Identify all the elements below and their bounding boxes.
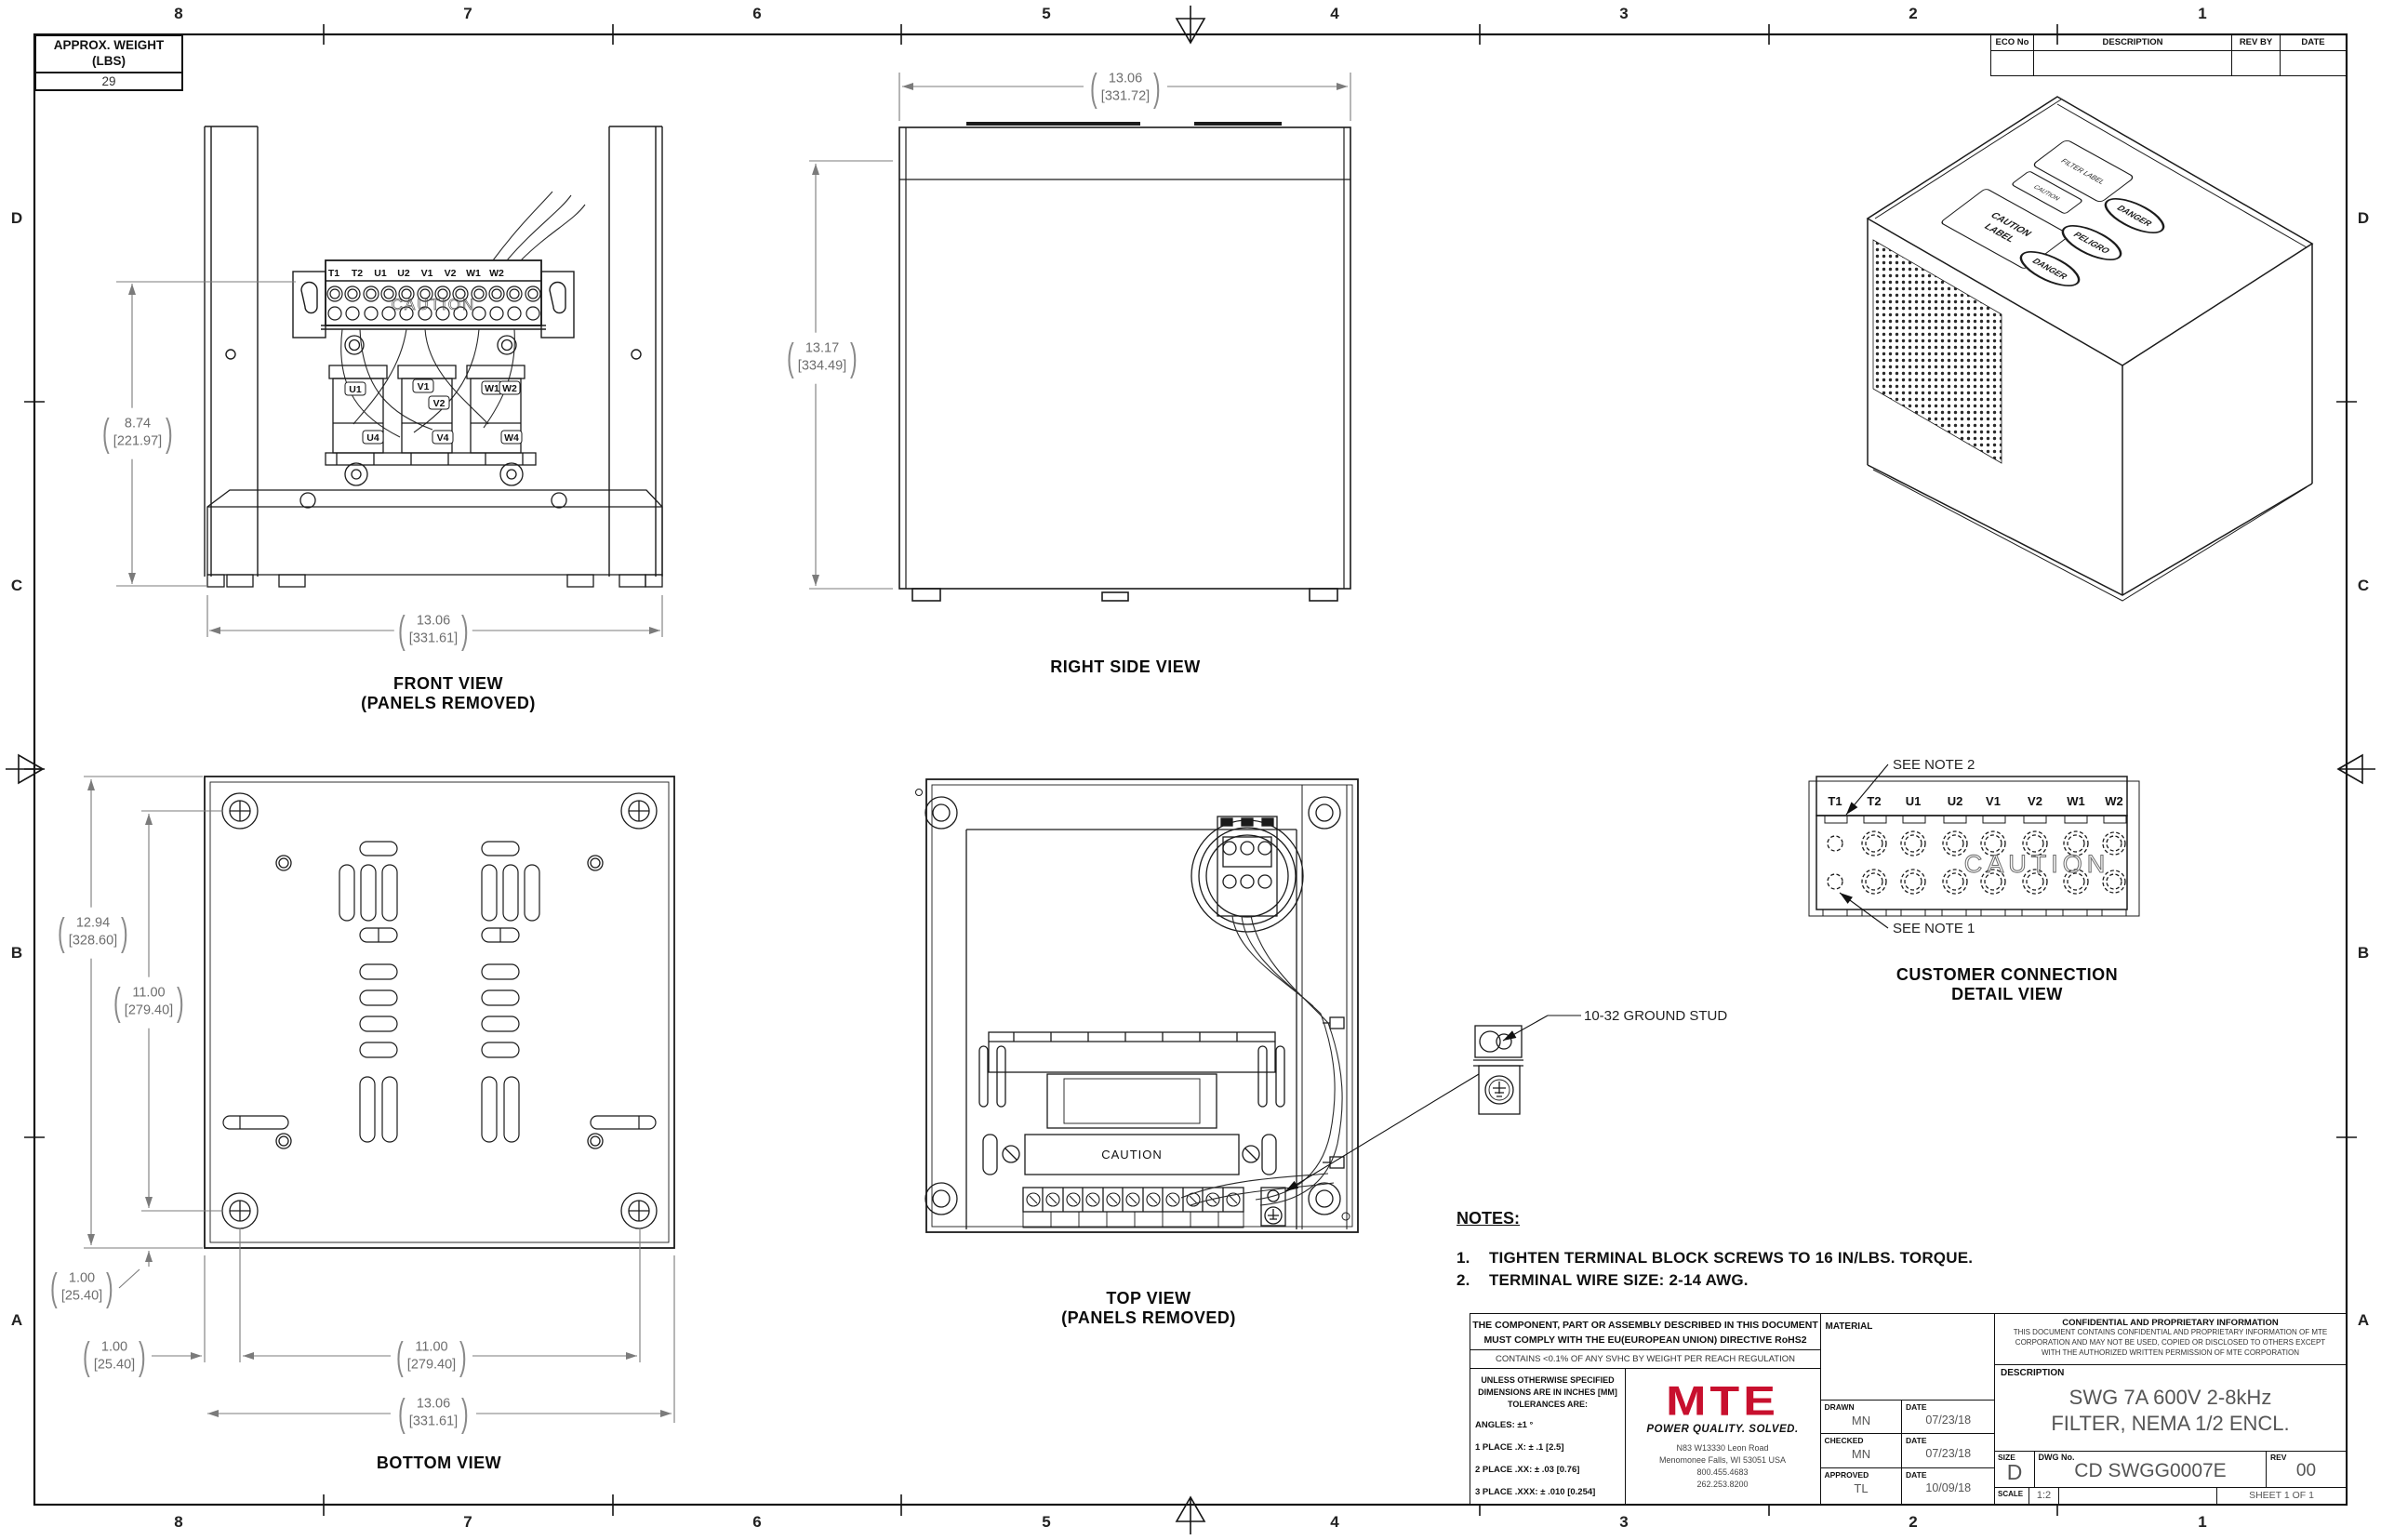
detail-terminal-u1: U1 <box>1906 794 1922 808</box>
drawn-date-label: DATE <box>1902 1401 1995 1414</box>
sheet-value: SHEET 1 OF 1 <box>2217 1488 2346 1504</box>
front-view-title-text: FRONT VIEW <box>393 674 503 693</box>
front-terminal-t1: T1 <box>328 268 339 279</box>
dwg-no-value: CD SWGG0007E <box>2035 1460 2267 1482</box>
confidential-title: CONFIDENTIAL AND PROPRIETARY INFORMATION <box>1995 1318 2346 1328</box>
zone-col-1-bottom: 1 <box>2198 1513 2206 1532</box>
drawing-sheet: FILTER LABEL CAUTION CAUTION LABEL DANGE… <box>0 0 2381 1540</box>
checked-name: MN <box>1821 1447 1902 1461</box>
material-cell: MATERIAL <box>1820 1313 1996 1401</box>
confidential-cell: CONFIDENTIAL AND PROPRIETARY INFORMATION… <box>1994 1313 2347 1365</box>
zone-row-c-left: C <box>11 577 22 595</box>
zone-row-c-right: C <box>2358 577 2369 595</box>
size-value: D <box>1995 1460 2034 1485</box>
note-1-number: 1. <box>1457 1249 1484 1268</box>
dim-side-height: (13.17[334.49]) <box>783 333 861 384</box>
zone-row-d-left: D <box>11 209 22 228</box>
bottom-view-drawing <box>84 777 674 1423</box>
ground-stud-detail <box>1473 1026 1523 1114</box>
front-view-drawing <box>116 126 662 637</box>
tol-angles: ANGLES: ±1 ° <box>1475 1420 1620 1430</box>
scale-label: SCALE <box>1995 1488 2029 1500</box>
detail-caution-watermark: CAUTION <box>1964 850 2110 878</box>
weight-table-header: APPROX. WEIGHT (LBS) <box>36 36 181 73</box>
dim-bottom-hole-v: (11.00[279.40]) <box>110 977 188 1029</box>
note-item-1: 1. TIGHTEN TERMINAL BLOCK SCREWS TO 16 I… <box>1457 1249 2163 1268</box>
eco-col-revby: REV BY <box>2232 35 2281 50</box>
dim-side-width: (13.06[331.72]) <box>1086 63 1164 114</box>
eco-col-description: DESCRIPTION <box>2034 35 2232 50</box>
scale-value: 1:2 <box>2029 1488 2059 1504</box>
weight-header-line2: (LBS) <box>92 54 126 68</box>
zone-col-7-top: 7 <box>463 5 472 23</box>
front-caution-text: CAUTION <box>392 296 476 313</box>
cap-label-u1: U1 <box>349 384 362 395</box>
zone-row-b-right: B <box>2358 944 2369 962</box>
zone-col-7-bottom: 7 <box>463 1513 472 1532</box>
isometric-view-drawing: FILTER LABEL CAUTION CAUTION LABEL DANGE… <box>1868 97 2312 601</box>
approved-cell: APPROVED TL <box>1820 1467 1903 1506</box>
right-side-dims <box>809 73 1350 589</box>
zone-col-2-bottom: 2 <box>1909 1513 1917 1532</box>
detail-terminal-w1: W1 <box>2067 794 2085 808</box>
bottom-view-title: BOTTOM VIEW <box>377 1454 501 1473</box>
front-dims <box>116 282 662 637</box>
zone-col-8-bottom: 8 <box>174 1513 182 1532</box>
detail-view-title: CUSTOMER CONNECTION DETAIL VIEW <box>1896 965 2118 1004</box>
front-terminal-v1: V1 <box>421 268 433 279</box>
title-block: THE COMPONENT, PART OR ASSEMBLY DESCRIBE… <box>1470 1313 2347 1505</box>
top-strip-screws <box>1027 1193 1240 1206</box>
zone-col-4-top: 4 <box>1330 5 1338 23</box>
cap-label-v1: V1 <box>418 381 430 392</box>
front-terminal-v2: V2 <box>445 268 457 279</box>
cap-label-w2: W2 <box>502 383 517 394</box>
material-label: MATERIAL <box>1826 1321 1873 1332</box>
note-2-number: 2. <box>1457 1271 1484 1290</box>
checked-cell: CHECKED MN <box>1820 1433 1903 1468</box>
leaders <box>1285 1016 1581 1191</box>
bottom-view-title-text: BOTTOM VIEW <box>377 1454 501 1472</box>
tol-place3: 3 PLACE .XXX: ± .010 [0.254] <box>1475 1487 1620 1497</box>
tol-place1: 1 PLACE .X: ± .1 [2.5] <box>1475 1442 1620 1453</box>
eco-revision-table: ECO No DESCRIPTION REV BY DATE <box>1990 34 2347 76</box>
top-caution-text: CAUTION <box>1101 1148 1163 1162</box>
scale-empty-cell <box>2058 1487 2218 1506</box>
approved-date-cell: DATE 10/09/18 <box>1901 1467 1996 1506</box>
zone-row-b-left: B <box>11 944 22 962</box>
approved-label: APPROVED <box>1821 1468 1902 1481</box>
front-view-subtitle: (PANELS REMOVED) <box>361 694 536 713</box>
zone-col-6-bottom: 6 <box>752 1513 761 1532</box>
top-view-subtitle: (PANELS REMOVED) <box>1061 1308 1236 1328</box>
cap-label-w4: W4 <box>504 432 519 444</box>
right-side-view-title-text: RIGHT SIDE VIEW <box>1050 657 1201 676</box>
reach-cell: CONTAINS <0.1% OF ANY SVHC BY WEIGHT PER… <box>1470 1349 1821 1370</box>
description-line2: FILTER, NEMA 1/2 ENCL. <box>2051 1412 2289 1435</box>
eco-empty-row <box>1991 51 2346 76</box>
zone-col-5-top: 5 <box>1042 5 1050 23</box>
detail-view-drawing <box>1809 764 2139 928</box>
approx-weight-table: APPROX. WEIGHT (LBS) 29 <box>34 34 183 91</box>
compliance-line2: MUST COMPLY WITH THE EU(EUROPEAN UNION) … <box>1483 1334 1806 1346</box>
dim-front-width: (13.06[331.61]) <box>394 605 472 657</box>
dim-bottom-offset-v: (1.00[25.40]) <box>47 1263 117 1314</box>
dim-bottom-width: (13.06[331.61]) <box>394 1388 472 1440</box>
detail-terminal-v2: V2 <box>2028 794 2042 808</box>
weight-value: 29 <box>36 73 181 89</box>
tol-line1: UNLESS OTHERWISE SPECIFIED <box>1481 1375 1614 1385</box>
description-line1: SWG 7A 600V 2-8kHz <box>2069 1386 2272 1409</box>
tol-line2: DIMENSIONS ARE IN INCHES [MM] <box>1478 1387 1617 1397</box>
scale-value-cell: 1:2 <box>2029 1487 2060 1506</box>
front-terminal-t2: T2 <box>352 268 363 279</box>
note-item-2: 2. TERMINAL WIRE SIZE: 2-14 AWG. <box>1457 1271 2163 1290</box>
tol-line3: TOLERANCES ARE: <box>1508 1400 1588 1409</box>
notes-block: NOTES: 1. TIGHTEN TERMINAL BLOCK SCREWS … <box>1457 1209 2163 1294</box>
front-view-title: FRONT VIEW (PANELS REMOVED) <box>361 674 536 713</box>
rev-value: 00 <box>2267 1461 2346 1481</box>
tol-place2: 2 PLACE .XX: ± .03 [0.76] <box>1475 1465 1620 1475</box>
detail-terminal-v1: V1 <box>1986 794 2001 808</box>
zone-row-a-left: A <box>11 1311 22 1330</box>
dwg-no-cell: DWG No. CD SWGG0007E <box>2034 1451 2268 1488</box>
svg-text-labels: T1 T2 U1 U2 V1 V2 W1 W2 CAUTION U1 V1 V2… <box>328 268 2123 1162</box>
scale-label-cell: SCALE <box>1994 1487 2029 1506</box>
dim-bottom-hole-h: (11.00[279.40]) <box>392 1332 471 1383</box>
detail-terminal-labels: T1 T2 U1 U2 V1 V2 W1 W2 <box>1828 794 2122 808</box>
detail-terminal-w2: W2 <box>2105 794 2123 808</box>
detail-view-title-line2: DETAIL VIEW <box>1896 985 2118 1004</box>
compliance-line1: THE COMPONENT, PART OR ASSEMBLY DESCRIBE… <box>1472 1320 1818 1331</box>
front-terminal-w2: W2 <box>489 268 504 279</box>
checked-date-cell: DATE 07/23/18 <box>1901 1433 1996 1468</box>
top-view-drawing <box>916 779 1582 1232</box>
detail-terminal-t2: T2 <box>1867 794 1881 808</box>
address-line2: Menomonee Falls, WI 53051 USA <box>1659 1455 1786 1465</box>
right-side-view-title: RIGHT SIDE VIEW <box>1050 657 1201 677</box>
bottom-vent-slots <box>223 842 656 1142</box>
detail-terminal-u2: U2 <box>1948 794 1963 808</box>
front-terminal-labels: T1 T2 U1 U2 V1 V2 W1 W2 <box>328 268 504 279</box>
front-terminal-w1: W1 <box>466 268 481 279</box>
zone-col-3-bottom: 3 <box>1619 1513 1628 1532</box>
zone-col-4-bottom: 4 <box>1330 1513 1338 1532</box>
description-label: DESCRIPTION <box>1995 1365 2346 1381</box>
mte-tagline: POWER QUALITY. SOLVED. <box>1626 1424 1820 1435</box>
note-1-text: TIGHTEN TERMINAL BLOCK SCREWS TO 16 IN/L… <box>1489 1249 1973 1267</box>
mte-address: N83 W13330 Leon Road Menomonee Falls, WI… <box>1626 1442 1820 1491</box>
drawn-label: DRAWN <box>1821 1401 1902 1414</box>
notes-header: NOTES: <box>1457 1209 2163 1228</box>
top-view-title-text: TOP VIEW <box>1106 1289 1190 1308</box>
right-side-view-drawing <box>809 73 1350 601</box>
dim-bottom-offset-h: (1.00[25.40]) <box>79 1332 150 1383</box>
dim-front-height: (8.74[221.97]) <box>99 408 177 459</box>
eco-header-row: ECO No DESCRIPTION REV BY DATE <box>1991 35 2346 51</box>
confidential-line2: CORPORATION AND MAY NOT BE USED, COPIED … <box>2015 1338 2325 1347</box>
zone-col-5-bottom: 5 <box>1042 1513 1050 1532</box>
zone-row-d-right: D <box>2358 209 2369 228</box>
drawn-date-cell: DATE 07/23/18 <box>1901 1400 1996 1435</box>
confidential-line3: WITH THE AUTHORIZED WRITTEN PERMISSION O… <box>2042 1348 2299 1357</box>
address-line1: N83 W13330 Leon Road <box>1676 1443 1768 1453</box>
cap-label-v2: V2 <box>433 398 446 409</box>
size-cell: SIZE D <box>1994 1451 2035 1488</box>
address-line3: 800.455.4683 <box>1696 1467 1748 1477</box>
zone-col-2-top: 2 <box>1909 5 1917 23</box>
approved-date: 10/09/18 <box>1902 1481 1995 1494</box>
checked-label: CHECKED <box>1821 1434 1902 1447</box>
mte-logo: MTE <box>1626 1380 1820 1423</box>
zone-col-1-top: 1 <box>2198 5 2206 23</box>
zone-col-3-top: 3 <box>1619 5 1628 23</box>
eco-col-no: ECO No <box>1991 35 2034 50</box>
checked-date: 07/23/18 <box>1902 1447 1995 1460</box>
see-note-1-callout: SEE NOTE 1 <box>1893 921 1975 936</box>
drawn-date: 07/23/18 <box>1902 1414 1995 1427</box>
zone-col-8-top: 8 <box>174 5 182 23</box>
note-2-text: TERMINAL WIRE SIZE: 2-14 AWG. <box>1489 1271 1749 1289</box>
confidential-line1: THIS DOCUMENT CONTAINS CONFIDENTIAL AND … <box>2014 1328 2328 1336</box>
top-view-title: TOP VIEW (PANELS REMOVED) <box>1061 1289 1236 1328</box>
detail-view-title-line1: CUSTOMER CONNECTION <box>1896 965 2118 984</box>
address-line4: 262.253.8200 <box>1696 1480 1748 1489</box>
iso-vent-grille <box>1873 240 2002 463</box>
zone-col-6-top: 6 <box>752 5 761 23</box>
sheet-cell: SHEET 1 OF 1 <box>2216 1487 2347 1506</box>
see-note-2-callout: SEE NOTE 2 <box>1893 757 1975 773</box>
cap-label-u4: U4 <box>366 432 379 444</box>
top-view-parts <box>916 790 1350 1228</box>
rev-cell: REV 00 <box>2266 1451 2347 1488</box>
approved-date-label: DATE <box>1902 1468 1995 1481</box>
detail-terminal-t1: T1 <box>1828 794 1842 808</box>
logo-cell: MTE POWER QUALITY. SOLVED. N83 W13330 Le… <box>1625 1368 1821 1505</box>
eco-col-date: DATE <box>2281 35 2346 50</box>
checked-date-label: DATE <box>1902 1434 1995 1447</box>
ground-stud-callout: 10-32 GROUND STUD <box>1584 1008 1727 1024</box>
compliance-cell: THE COMPONENT, PART OR ASSEMBLY DESCRIBE… <box>1470 1313 1821 1350</box>
drawn-cell: DRAWN MN <box>1820 1400 1903 1435</box>
front-terminal-u2: U2 <box>397 268 410 279</box>
front-terminal-u1: U1 <box>374 268 387 279</box>
weight-header-line1: APPROX. WEIGHT <box>54 38 165 52</box>
bottom-dims <box>84 777 674 1423</box>
zone-row-a-right: A <box>2358 1311 2369 1330</box>
dim-bottom-height: (12.94[328.60]) <box>54 908 132 959</box>
drawn-name: MN <box>1821 1414 1902 1427</box>
reach-text: CONTAINS <0.1% OF ANY SVHC BY WEIGHT PER… <box>1496 1354 1795 1364</box>
cap-label-w1: W1 <box>485 383 499 394</box>
bottom-corner-screws <box>222 793 657 1228</box>
cap-label-v4: V4 <box>437 432 449 444</box>
approved-name: TL <box>1821 1481 1902 1495</box>
tolerances-cell: UNLESS OTHERWISE SPECIFIED DIMENSIONS AR… <box>1470 1368 1626 1505</box>
description-cell: DESCRIPTION SWG 7A 600V 2-8kHz FILTER, N… <box>1994 1364 2347 1453</box>
